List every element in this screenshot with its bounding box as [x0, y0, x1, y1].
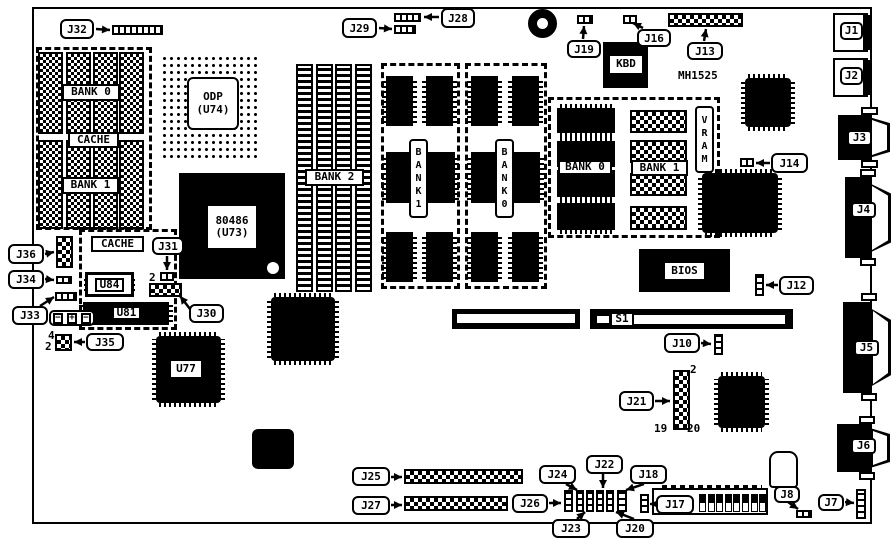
callout-j27: J27 [352, 496, 390, 515]
dip-switch-cell [725, 494, 732, 512]
dram-chip [386, 76, 413, 126]
jumper-j12 [755, 274, 764, 296]
jumper-j10 [714, 334, 723, 355]
callout-j31: J31 [152, 237, 184, 255]
pin-header-j30 [149, 283, 182, 297]
callout-j18: J18 [630, 465, 667, 484]
jumper-block-j35 [55, 334, 72, 351]
callout-j32: J32 [60, 19, 94, 39]
battery-terminal: + [67, 313, 77, 324]
callout-j7: J7 [818, 494, 844, 511]
label-dram-bank0: B A N K 0 [495, 139, 514, 218]
callout-j16: J16 [637, 29, 671, 47]
label-j5: J5 [854, 340, 879, 356]
callout-j28: J28 [441, 8, 475, 28]
chip-unlabeled-mid [271, 297, 335, 361]
label-80486-u73: 80486 (U73) [208, 206, 256, 248]
jumper-j33 [55, 292, 77, 301]
connector-j4-tab [860, 258, 876, 266]
callout-j36: J36 [8, 244, 44, 264]
label-u84: U84 [95, 278, 124, 292]
callout-j23: J23 [552, 519, 590, 538]
jumper-bottom [617, 490, 627, 512]
board-part-number: MH1525 [678, 69, 718, 82]
slot-s1-notch [597, 316, 609, 323]
cache-socket [119, 52, 144, 134]
jumper-bottom [596, 490, 604, 512]
vram-socket [630, 173, 687, 196]
dram-chip [512, 76, 539, 126]
callout-j30: J30 [189, 304, 224, 323]
callout-j35: J35 [86, 333, 124, 351]
callout-j26: J26 [512, 494, 548, 513]
label-bios: BIOS [665, 263, 704, 279]
pin-number-j21-19: 19 [654, 422, 667, 435]
pin-number-j31-2: 2 [149, 271, 156, 284]
callout-j13: J13 [687, 42, 723, 60]
label-s1: S1 [610, 312, 634, 327]
label-kbd: KBD [610, 56, 642, 73]
callout-j34: J34 [8, 270, 44, 289]
label-j4: J4 [851, 202, 876, 218]
jumper-j16 [623, 15, 637, 24]
label-cache-bank1: BANK 1 [62, 177, 119, 194]
label-vram-bank0: BANK 0 [558, 160, 612, 175]
pin-header-j32 [112, 25, 163, 35]
pin-number-j21-20: 20 [687, 422, 700, 435]
chip-unlabeled-bottom-left [252, 429, 294, 469]
label-j3: J3 [847, 130, 872, 146]
jumper-j14 [740, 158, 754, 167]
battery: −+− [49, 310, 95, 326]
label-cache: CACHE [68, 132, 119, 148]
jumper-j28 [394, 13, 421, 22]
dram-chip [386, 232, 413, 282]
label-j2: J2 [840, 67, 863, 85]
callout-j33: J33 [12, 306, 48, 325]
vram-socket [630, 206, 687, 230]
callout-j21: J21 [619, 391, 654, 411]
cache-socket [119, 140, 144, 229]
pin-header-j7 [856, 489, 866, 519]
label-vram: V R A M [695, 106, 714, 173]
battery-terminal: − [81, 313, 91, 324]
callout-j12: J12 [779, 276, 814, 295]
dip-switch-cell [751, 494, 758, 512]
connector-j4-tab [860, 169, 876, 177]
callout-j20: J20 [616, 519, 654, 538]
pin-header-j21 [673, 370, 690, 430]
dram-chip [428, 152, 455, 203]
callout-j24: J24 [539, 465, 576, 484]
dip-switch-cell [699, 494, 706, 512]
label-dram-bank1: B A N K 1 [409, 139, 428, 218]
cache-socket [38, 52, 63, 134]
label-bank2: BANK 2 [305, 169, 364, 186]
callout-j25: J25 [352, 467, 390, 486]
callout-j22: J22 [586, 455, 623, 474]
dip-switch-cell [716, 494, 723, 512]
connector-j1-key [863, 15, 871, 50]
vram-chip [557, 108, 615, 133]
pin-number-j35-2: 2 [45, 340, 52, 353]
callout-j29: J29 [342, 18, 377, 38]
jumper-j31 [160, 272, 174, 281]
dip-switch-cell [733, 494, 740, 512]
callout-j10: J10 [664, 333, 700, 353]
dram-chip [512, 232, 539, 282]
jumper-bottom [576, 490, 584, 512]
pin-header-j36 [56, 236, 73, 268]
cache-socket [38, 140, 63, 229]
label-u81: U81 [112, 306, 141, 320]
mounting-hole [528, 9, 557, 38]
pin-header-j25 [404, 469, 523, 484]
jumper-j34 [56, 276, 72, 284]
callout-j19: J19 [567, 40, 601, 58]
callout-j8: J8 [774, 486, 800, 503]
dram-chip [426, 232, 453, 282]
connector-j2-key [863, 60, 871, 95]
connector-j5-tab [861, 393, 877, 401]
dip-switch-cell [759, 494, 766, 512]
connector-j6-tab [859, 472, 875, 480]
label-u77: U77 [171, 361, 201, 377]
jumper-bottom [564, 490, 573, 512]
label-cache-2: CACHE [91, 236, 144, 252]
connector-j6-tab [859, 416, 875, 424]
pin-header-j13 [668, 13, 743, 27]
pin-header-j27 [404, 496, 508, 511]
cpu-pin1-dot [267, 262, 279, 274]
label-vram-bank1: BANK 1 [631, 160, 688, 176]
callout-j17: J17 [656, 495, 694, 514]
jumper-j17-side [640, 494, 649, 513]
jumper-bottom [606, 490, 614, 512]
callout-j14: J14 [771, 153, 808, 173]
vram-socket [630, 110, 687, 133]
pin-number-j21-2: 2 [690, 363, 697, 376]
motherboard-layout-diagram: MH1525 BANK 0CACHEBANK 1ODP (U74)80486 (… [0, 0, 892, 549]
connector-j4-dsub [869, 183, 891, 253]
dip-switch-cell [708, 494, 715, 512]
dram-chip [471, 76, 498, 126]
dip-switch-cell [742, 494, 749, 512]
dram-chip [426, 76, 453, 126]
jumper-bottom [586, 490, 594, 512]
connector-j3-dsub [869, 117, 890, 158]
connector-j3-tab [861, 160, 878, 168]
label-odp-u74: ODP (U74) [187, 77, 239, 130]
label-j6: J6 [851, 438, 876, 454]
vram-chip [557, 203, 615, 230]
connector-j5-tab [861, 293, 877, 301]
chip-unlabeled-bottom-right [718, 376, 765, 428]
slot-s1-left-inner [457, 314, 575, 323]
capacitor-j8 [769, 451, 798, 488]
jumper-j19 [577, 15, 593, 24]
chip-unlabeled-top-right [745, 78, 791, 127]
label-j1: J1 [840, 22, 863, 40]
battery-terminal: − [53, 313, 63, 324]
jumper-j8 [796, 510, 812, 518]
dram-chip [471, 152, 498, 203]
chip-vram-controller [702, 173, 778, 233]
connector-j3-tab [861, 107, 878, 115]
dram-chip [471, 232, 498, 282]
slot-s1-right-inner [633, 315, 785, 324]
dram-chip [513, 152, 540, 203]
label-cache-bank0: BANK 0 [62, 84, 120, 101]
jumper-j29 [394, 25, 416, 34]
